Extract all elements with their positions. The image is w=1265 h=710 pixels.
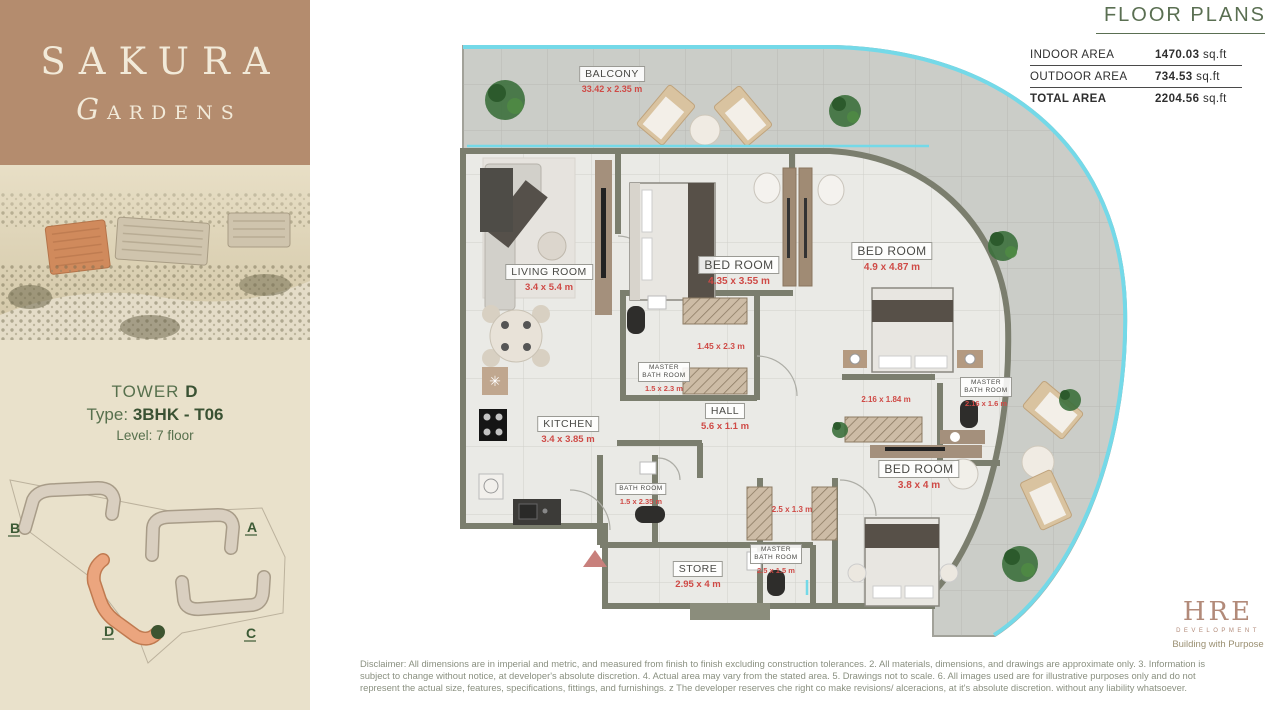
plant-icon <box>1059 389 1081 411</box>
wardrobe-icon <box>845 417 922 442</box>
brand-logo: SAKURA GARDENS <box>0 0 310 165</box>
site-label-b: B <box>10 520 20 536</box>
unit-level: Level: 7 floor <box>0 428 310 443</box>
site-building-b <box>25 488 114 528</box>
chair-icon <box>754 173 780 203</box>
plant-icon <box>485 80 525 120</box>
balcony-table-icon <box>690 115 720 145</box>
unit-tower: TOWER D <box>0 382 310 402</box>
development-render-image <box>0 165 310 340</box>
disclaimer-text: Disclaimer: All dimensions are in imperi… <box>360 658 1212 695</box>
floor-plan-drawing: ✳ <box>455 38 1155 648</box>
site-unit-marker <box>151 625 165 639</box>
unit-info: TOWER D Type: 3BHK - T06 Level: 7 floor <box>0 382 310 443</box>
coffee-table-icon <box>538 232 566 260</box>
floor-plan: ✳ <box>455 38 1155 648</box>
fridge-icon: ✳ <box>482 367 508 395</box>
render-building-grey-1 <box>115 217 210 265</box>
plant-icon <box>829 95 861 127</box>
developer-tagline: Building with Purpose <box>1170 639 1265 650</box>
bed-icon-1 <box>630 183 715 300</box>
site-building-a <box>152 515 233 555</box>
chair-icon <box>948 459 978 489</box>
svg-text:✳: ✳ <box>489 373 501 389</box>
plant-icon <box>1002 546 1038 582</box>
wardrobe-icon <box>747 487 772 540</box>
wardrobe-dark-icon <box>480 168 513 232</box>
unit-type: Type: 3BHK - T06 <box>0 405 310 425</box>
brand-panel: SAKURA GARDENS <box>0 0 310 710</box>
plant-icon <box>988 231 1018 261</box>
wardrobe-icon <box>683 368 747 394</box>
plant-icon <box>832 422 848 438</box>
site-plan: B A C D <box>0 460 310 675</box>
pouf-icon <box>848 564 866 582</box>
wardrobe-icon <box>683 298 747 324</box>
bed-icon-2 <box>872 288 953 372</box>
brand-subtitle: GARDENS <box>68 93 242 126</box>
washer-icon <box>479 474 503 499</box>
site-label-d: D <box>104 623 114 639</box>
site-label-a: A <box>247 519 257 535</box>
render-building-grey-2 <box>228 213 290 247</box>
bed-icon-3 <box>865 518 939 606</box>
cooktop-icon <box>479 409 507 441</box>
pouf-icon <box>940 564 958 582</box>
dining-table-icon <box>482 305 550 367</box>
tv-unit-icon <box>595 160 612 315</box>
developer-sub: DEVELOPMENT <box>1170 628 1265 634</box>
wardrobe-icon <box>812 487 837 540</box>
developer-logo: HRE DEVELOPMENT Building with Purpose <box>1170 597 1265 650</box>
developer-name: HRE <box>1170 597 1265 627</box>
tv-console-icon <box>870 445 982 458</box>
brand-title: SAKURA <box>27 40 282 83</box>
kitchen-sink-counter-icon <box>513 499 561 525</box>
page-title: FLOOR PLANS <box>1096 2 1265 34</box>
site-label-c: C <box>246 625 256 641</box>
site-building-c <box>182 577 264 609</box>
entrance-step <box>690 603 770 620</box>
chair-icon <box>818 175 844 205</box>
